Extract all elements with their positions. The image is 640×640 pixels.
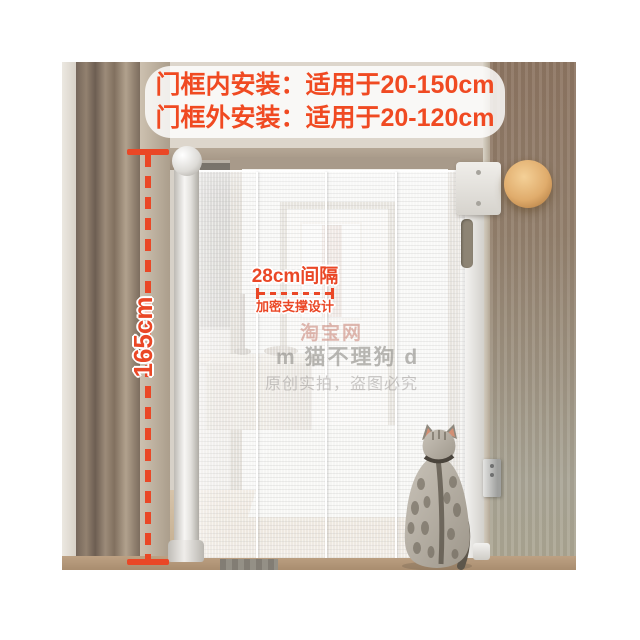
- cat: [397, 424, 478, 570]
- wall-lamp: [504, 160, 552, 208]
- watermark-notice: 原创实拍，盗图必究: [265, 370, 418, 394]
- bracket-screw: [490, 473, 494, 477]
- measure-bottom-cap: [127, 559, 169, 565]
- banner-line-1: 门框内安装：适用于20-150cm: [156, 69, 495, 102]
- spacing-note-title: 28cm间隔: [238, 266, 352, 287]
- doormat: [220, 559, 278, 570]
- height-measure-label: 165cm: [128, 278, 158, 396]
- spacing-note: 28cm间隔 加密支撑设计: [238, 266, 352, 314]
- gate-roll-pole: [174, 158, 199, 562]
- ruler-right-tick: [331, 288, 334, 299]
- bottom-mount-bracket: [483, 459, 501, 497]
- banner-line-2: 门框外安装：适用于20-120cm: [156, 102, 495, 135]
- top-mount-bracket: [456, 162, 501, 215]
- gate-pole-base: [168, 540, 204, 562]
- bracket-screw: [476, 170, 481, 175]
- bracket-screw: [490, 464, 494, 468]
- spacing-note-subtitle: 加密支撑设计: [238, 299, 352, 314]
- gate-pole-ball-cap: [172, 146, 202, 176]
- gate-handle-slot: [461, 219, 473, 268]
- install-range-banner: 门框内安装：适用于20-150cm 门框外安装：适用于20-120cm: [145, 66, 505, 138]
- bracket-screw: [476, 201, 481, 206]
- product-image-stage: 门框内安装：适用于20-150cm 门框外安装：适用于20-120cm 165c…: [0, 0, 640, 640]
- mesh-support-seam: [256, 172, 258, 558]
- ruler-dashed-line: [259, 292, 331, 295]
- left-wall: [62, 62, 76, 570]
- watermark-shop-name: m 猫不理狗 d: [276, 341, 419, 371]
- spacing-ruler: [256, 288, 334, 299]
